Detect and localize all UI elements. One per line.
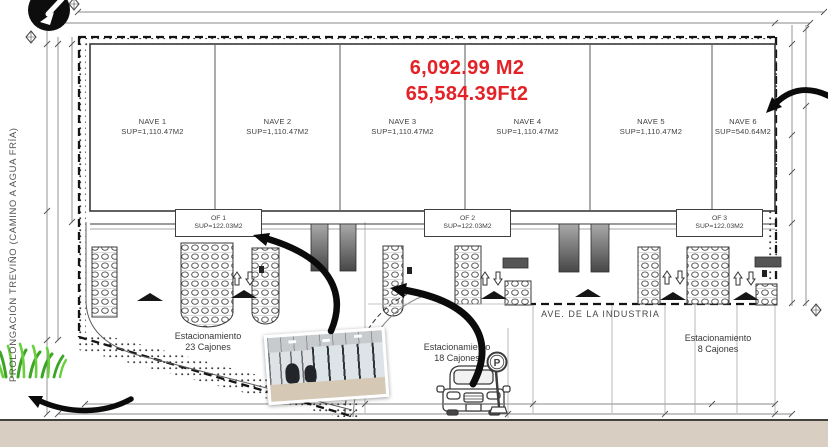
office-interior-photo — [264, 327, 390, 405]
site-plan-canvas: P PROLONGACIÓN TREVIÑO ( — [0, 0, 828, 447]
street-label-prolongacion-trevino: PROLONGACIÓN TREVIÑO (CAMINO A AGUA FRÍA… — [8, 52, 19, 382]
parking-lot-18-label: Estacionamiento18 Cajones — [397, 342, 517, 363]
bottom-road-strip — [0, 419, 828, 447]
circulation-arrows — [233, 271, 755, 285]
nave-1-label: NAVE 1SUP=1,110.47M2 — [90, 117, 215, 137]
total-area-m2: 6,092.99 M2 — [372, 55, 562, 81]
nave-5-label: NAVE 5SUP=1,110.47M2 — [590, 117, 712, 137]
parking-lot-8-label: Estacionamiento8 Cajones — [658, 333, 778, 354]
total-area-ft2: 65,584.39Ft2 — [372, 81, 562, 107]
total-area-label: 6,092.99 M2 65,584.39Ft2 — [372, 55, 562, 107]
nave-3-label: NAVE 3SUP=1,110.47M2 — [340, 117, 465, 137]
office-1-box: OF 1SUP=122.03M2 — [175, 209, 262, 237]
nave-2-label: NAVE 2SUP=1,110.47M2 — [215, 117, 340, 137]
street-label-ave-industria: AVE. DE LA INDUSTRIA — [518, 309, 683, 319]
nave-4-label: NAVE 4SUP=1,110.47M2 — [465, 117, 590, 137]
office-2-box: OF 2SUP=122.03M2 — [424, 209, 511, 237]
office-3-box: OF 3SUP=122.03M2 — [676, 209, 763, 237]
nave-6-label: NAVE 6SUP=540.64M2 — [709, 117, 777, 137]
parking-lot-23-label: Estacionamiento23 Cajones — [148, 331, 268, 352]
photo-chair — [285, 363, 300, 384]
photo-chair — [303, 365, 316, 383]
photo-ceiling-light — [288, 340, 296, 344]
